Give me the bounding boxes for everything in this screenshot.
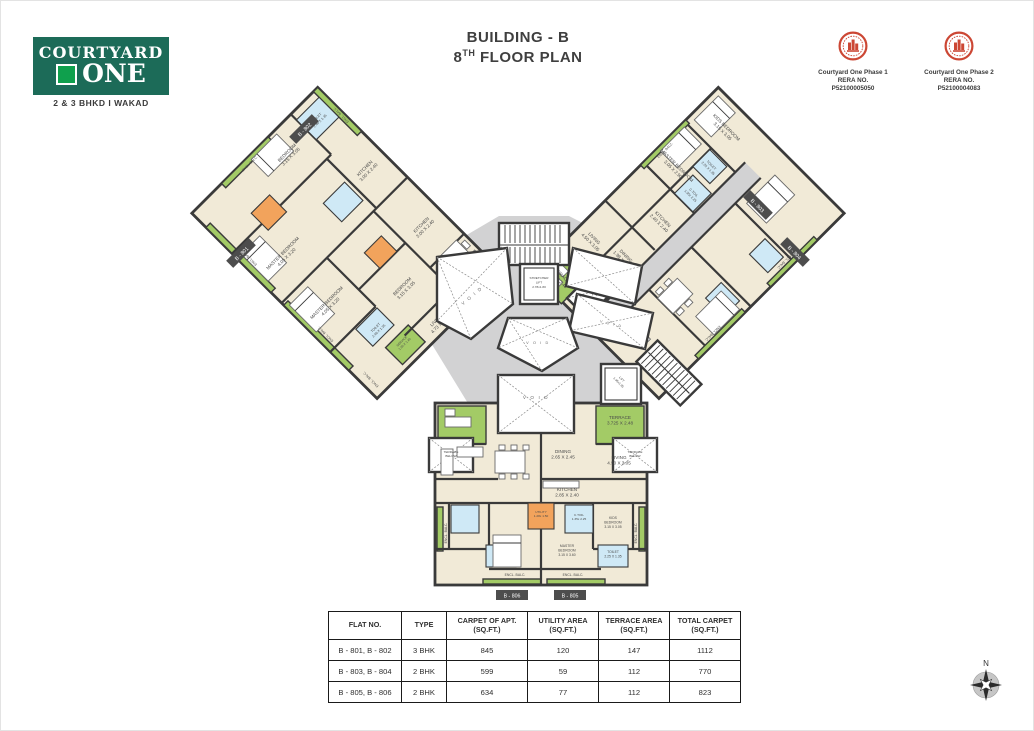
cell-flat-no: B - 805, B - 806 [329, 682, 402, 703]
cell-utility: 120 [528, 640, 599, 661]
room-label: TERRACE3.725 X 2.48 [607, 415, 633, 426]
core-staircase-top: UP [499, 223, 569, 265]
col-header-carpet: CARPET OF APT.(SQ.FT.) [447, 612, 528, 640]
flat-tag-b805: B - 805 [562, 594, 579, 600]
void-label: V O I D [523, 395, 549, 400]
cell-type: 3 BHK [402, 640, 447, 661]
terrace-below-label: TERRACEBELOW [628, 450, 643, 458]
cell-flat-no: B - 801, B - 802 [329, 640, 402, 661]
table-row: B - 803, B - 804 2 BHK 599 59 112 770 [329, 661, 741, 682]
area-table: FLAT NO. TYPE CARPET OF APT.(SQ.FT.) UTI… [328, 611, 741, 703]
flat-tag-b806: B - 806 [504, 594, 521, 600]
table-row: B - 801, B - 802 3 BHK 845 120 147 1112 [329, 640, 741, 661]
col-header-total: TOTAL CARPET(SQ.FT.) [670, 612, 741, 640]
core-lift: LIFT1.95x1.95 [601, 364, 641, 404]
cell-utility: 77 [528, 682, 599, 703]
table-row: B - 805, B - 806 2 BHK 634 77 112 823 [329, 682, 741, 703]
core-stretcher-lift: STRETCHERLIFT2.78x1.80 [520, 264, 558, 304]
room-label: KITCHEN2.85 X 2.40 [555, 487, 579, 498]
cell-total: 823 [670, 682, 741, 703]
north-compass-icon: N [970, 659, 1002, 701]
col-header-terrace: TERRACE AREA(SQ.FT.) [599, 612, 670, 640]
col-header-flat-no: FLAT NO. [329, 612, 402, 640]
cell-terrace: 112 [599, 682, 670, 703]
balcony-label: ENCL. BALC. [505, 573, 526, 577]
cell-terrace: 147 [599, 640, 670, 661]
balcony-label: ENCL. BALC. [563, 573, 584, 577]
cell-total: 1112 [670, 640, 741, 661]
floor-plan-page: COURTYARD ONE 2 & 3 BHKD I WAKAD BUILDIN… [0, 0, 1034, 731]
cell-terrace: 112 [599, 661, 670, 682]
void-label: V O I D [526, 341, 550, 345]
cell-utility: 59 [528, 661, 599, 682]
cell-carpet: 634 [447, 682, 528, 703]
col-header-type: TYPE [402, 612, 447, 640]
col-header-utility: UTILITY AREA(SQ.FT.) [528, 612, 599, 640]
room-label: UTILITY1.28x 1.50 [534, 510, 549, 518]
room-label: MASTERBEDROOM3.15 X 3.60 [558, 544, 576, 557]
balcony-label: ENCL. BALC. [444, 523, 448, 544]
north-label: N [983, 659, 989, 668]
cell-total: 770 [670, 661, 741, 682]
balcony-label: ENCL. BALC. [634, 523, 638, 544]
cell-type: 2 BHK [402, 682, 447, 703]
terrace-below-label: TERRACEBELOW [444, 450, 459, 458]
cell-flat-no: B - 803, B - 804 [329, 661, 402, 682]
cell-type: 2 BHK [402, 661, 447, 682]
cell-carpet: 599 [447, 661, 528, 682]
cell-carpet: 845 [447, 640, 528, 661]
